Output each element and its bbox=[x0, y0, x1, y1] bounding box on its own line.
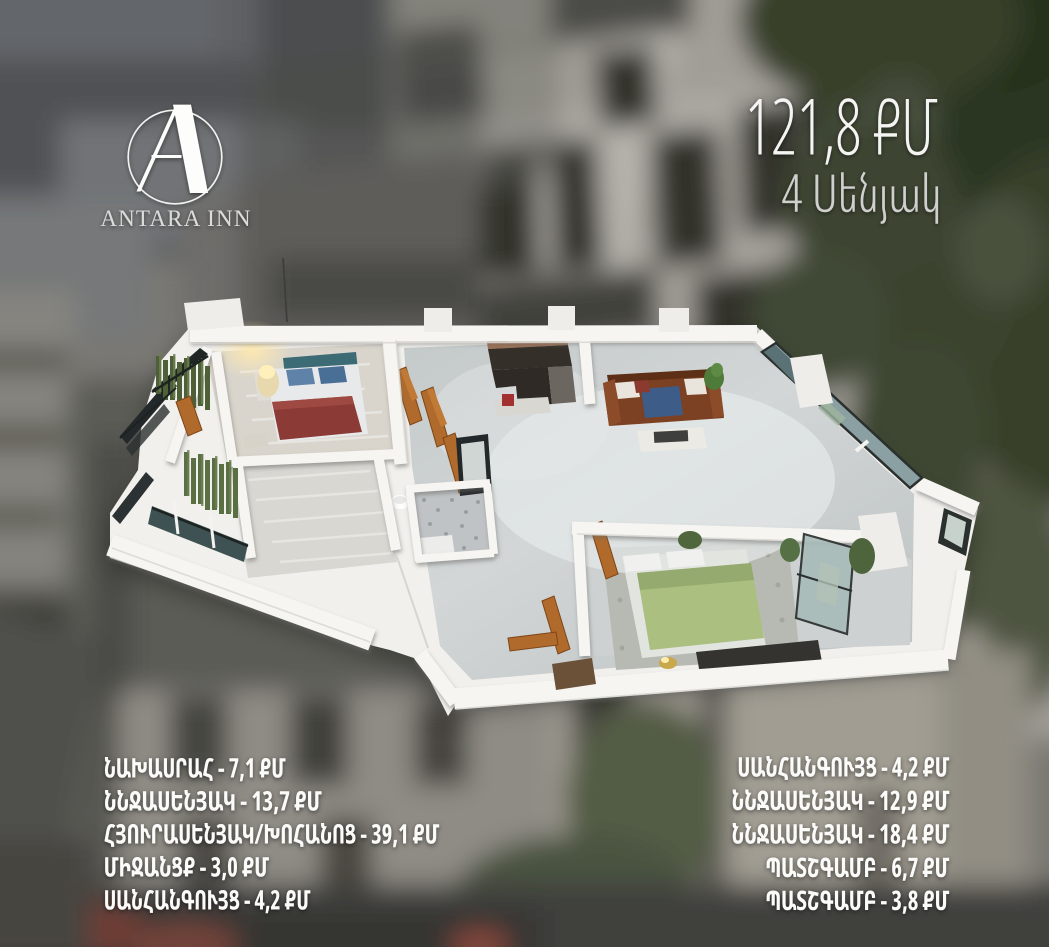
svg-text:ANTARA INN: ANTARA INN bbox=[100, 206, 251, 231]
